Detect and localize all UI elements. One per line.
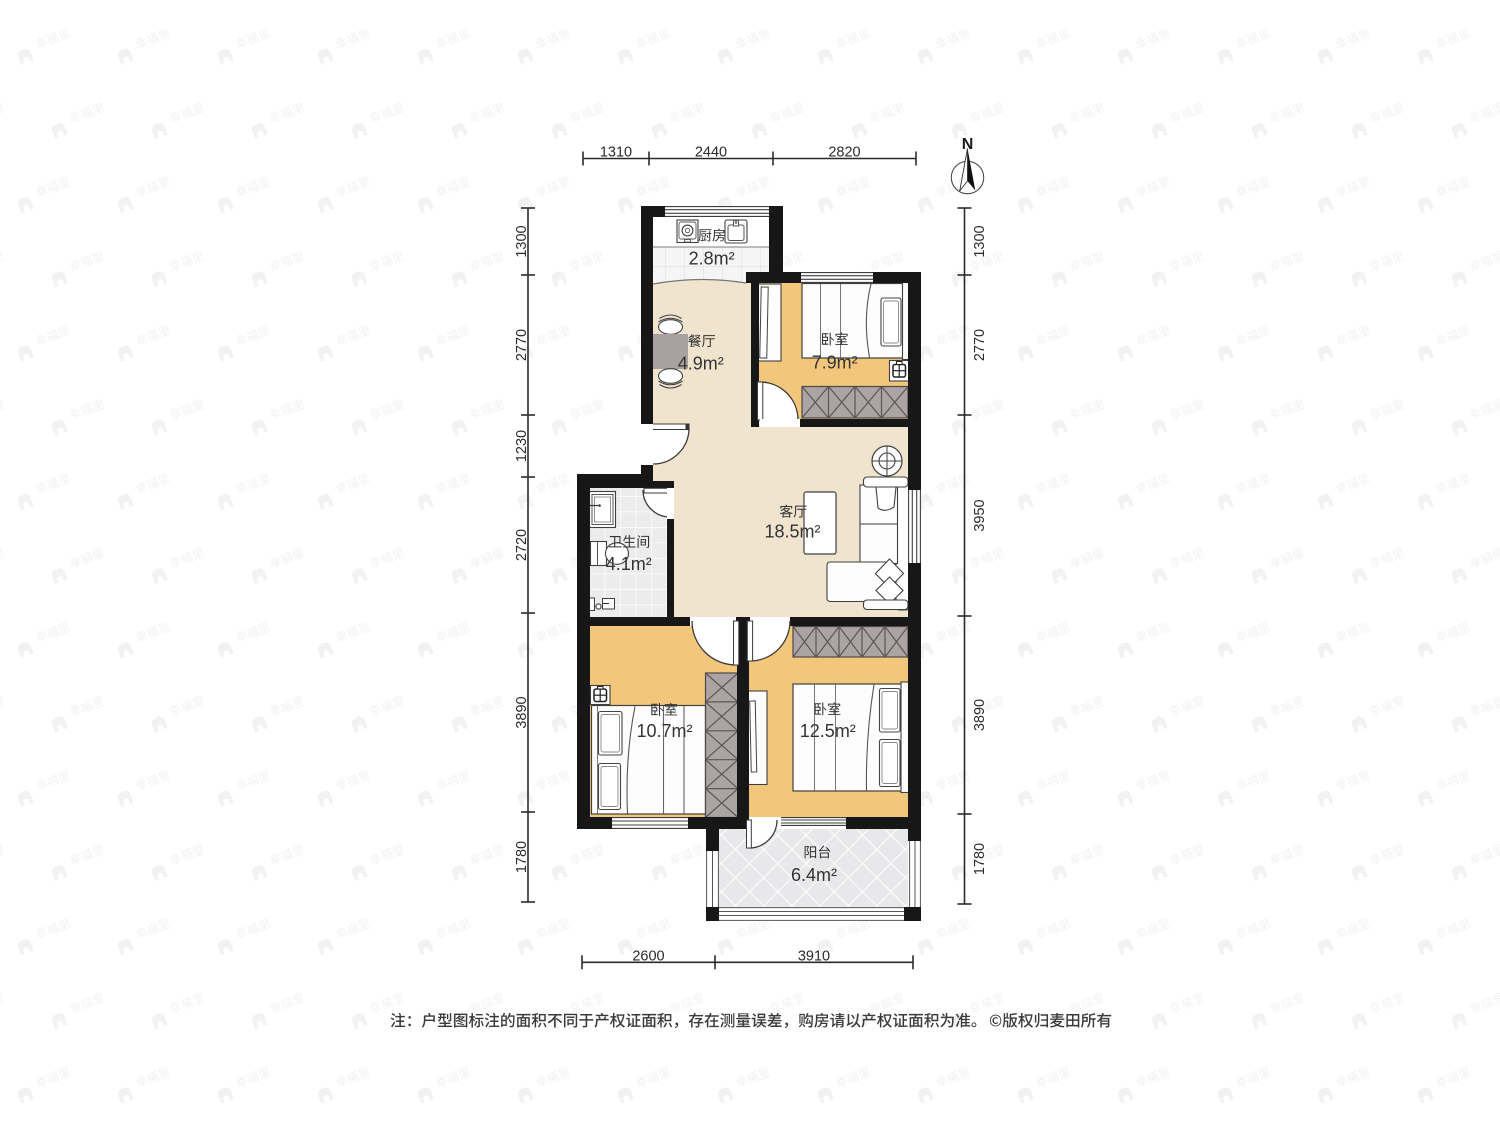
svg-text:3950: 3950 (972, 499, 988, 531)
svg-text:10.7m²: 10.7m² (636, 721, 692, 741)
svg-text:2720: 2720 (514, 529, 530, 561)
svg-text:1300: 1300 (972, 225, 988, 257)
svg-text:3910: 3910 (798, 949, 830, 965)
svg-text:2440: 2440 (695, 145, 727, 161)
svg-text:18.5m²: 18.5m² (764, 522, 820, 542)
svg-text:12.5m²: 12.5m² (800, 721, 856, 741)
svg-text:1310: 1310 (600, 145, 632, 161)
svg-text:2600: 2600 (632, 949, 664, 965)
svg-text:6.4m²: 6.4m² (791, 865, 837, 885)
svg-text:1300: 1300 (514, 225, 530, 257)
svg-text:4.9m²: 4.9m² (678, 354, 724, 374)
svg-text:2770: 2770 (972, 329, 988, 361)
svg-text:2.8m²: 2.8m² (689, 249, 735, 269)
svg-text:2820: 2820 (828, 145, 860, 161)
svg-text:1230: 1230 (514, 430, 530, 462)
svg-text:1780: 1780 (972, 843, 988, 875)
svg-text:2770: 2770 (514, 329, 530, 361)
svg-text:7.9m²: 7.9m² (812, 353, 858, 373)
svg-text:1780: 1780 (514, 841, 530, 873)
svg-text:4.1m²: 4.1m² (606, 554, 652, 574)
svg-text:3890: 3890 (972, 699, 988, 731)
svg-text:3890: 3890 (514, 696, 530, 728)
